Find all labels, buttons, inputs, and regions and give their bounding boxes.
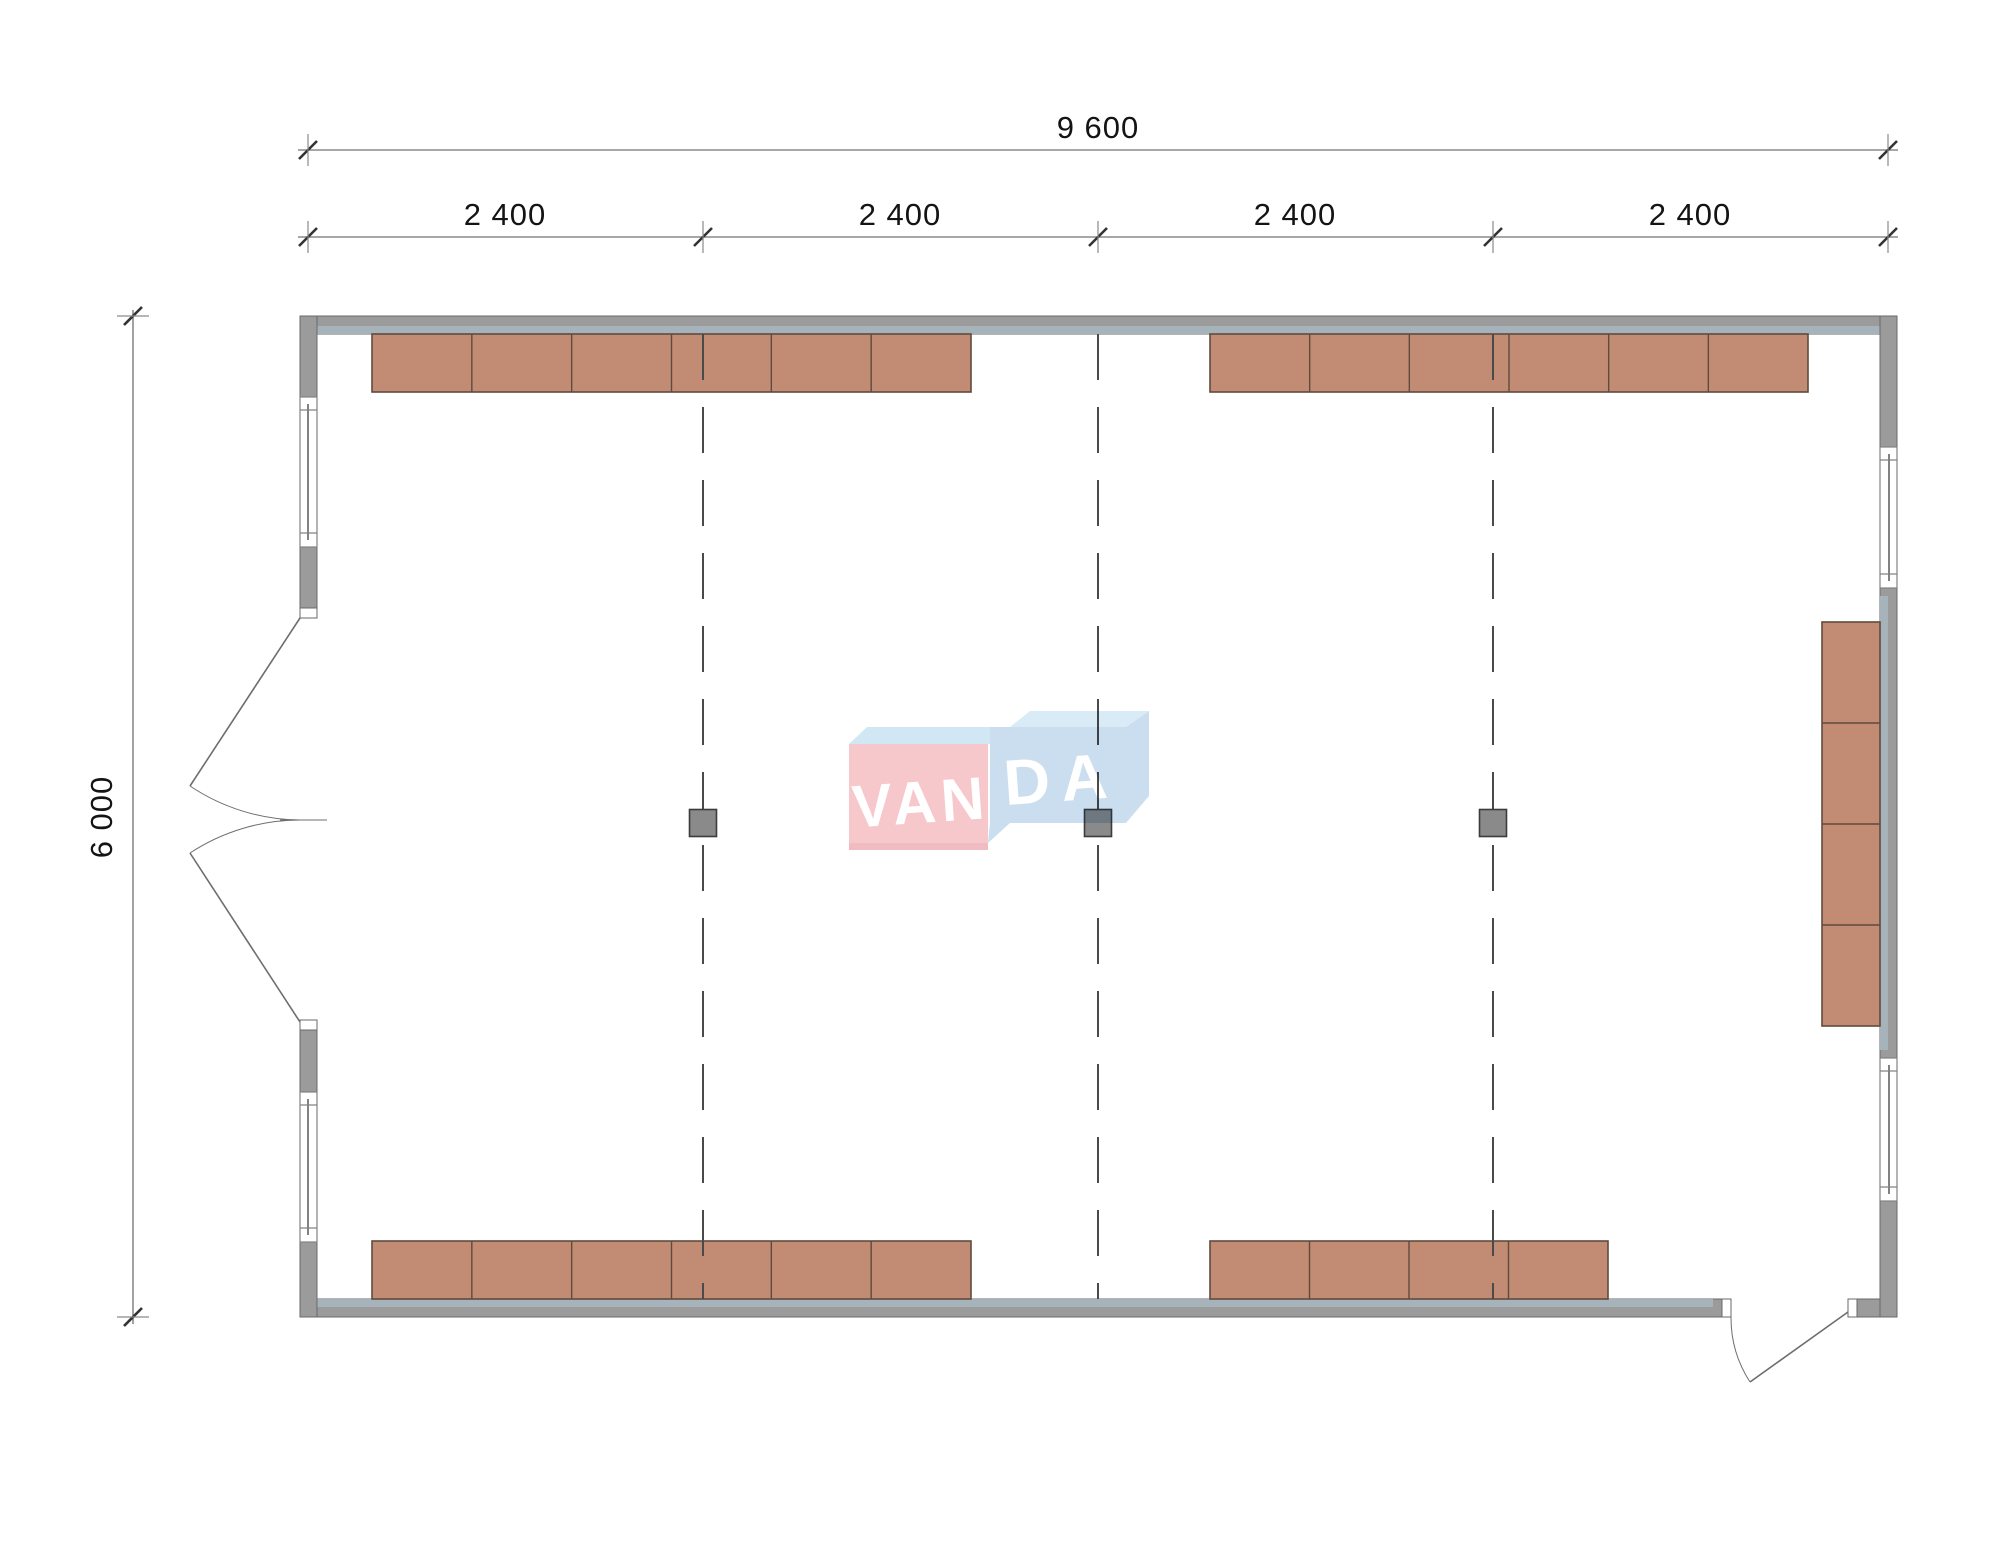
- door-swing-arc: [1731, 1317, 1750, 1382]
- logo-blue-side-face: [1126, 711, 1149, 823]
- logo-blue-bottom-wedge: [988, 823, 1010, 843]
- logo-blue-top-face: [1010, 711, 1149, 727]
- wall-top-inner-face: [317, 326, 1880, 334]
- dimension-label-total-depth: 6 000: [84, 776, 119, 859]
- wall-left-bottom: [300, 1242, 317, 1317]
- wall-right-bottom: [1880, 1201, 1897, 1317]
- logo-text-da: DA: [1001, 739, 1120, 819]
- dimension-label-bay-1: 2 400: [464, 197, 547, 232]
- floor-plan-drawing: 9 600 2 400 2 400 2 400 2 400 6 000: [0, 0, 2000, 1550]
- double-door-left: [190, 618, 327, 1022]
- exit-door-bottom-right: [1731, 1312, 1848, 1382]
- dimension-label-bay-2: 2 400: [859, 197, 942, 232]
- wall-right-top: [1880, 316, 1897, 447]
- dimension-label-total-width: 9 600: [1057, 110, 1140, 145]
- window-right-upper: [1880, 447, 1897, 588]
- dimension-total-width: 9 600: [298, 110, 1898, 150]
- wall-left-top: [300, 316, 317, 397]
- door-swing-arc-upper: [190, 786, 300, 820]
- wall-left-lower-pier: [300, 1030, 317, 1092]
- wall-left-upper-pier: [300, 547, 317, 608]
- door-swing-arc-lower: [190, 820, 300, 853]
- dimension-total-depth: 6 000: [84, 310, 133, 1324]
- wall-right-inner-face: [1880, 596, 1888, 1050]
- logo-pink-shadow: [849, 843, 988, 850]
- column: [1480, 810, 1507, 837]
- window-left-upper: [300, 397, 317, 547]
- wall-bottom-inner-face: [317, 1299, 1713, 1307]
- door-jamb-left: [1722, 1299, 1731, 1317]
- logo-top-band: [849, 727, 1010, 744]
- window-left-lower: [300, 1092, 317, 1242]
- floor-plan-canvas: 9 600 2 400 2 400 2 400 2 400 6 000: [0, 0, 2000, 1550]
- dimension-label-bay-4: 2 400: [1649, 197, 1732, 232]
- door-leaf: [1750, 1312, 1848, 1382]
- logo-text-van: VAN: [850, 764, 992, 840]
- door-jamb-lower: [300, 1020, 317, 1030]
- column: [690, 810, 717, 837]
- door-leaf-lower: [190, 853, 300, 1022]
- door-jamb-right: [1848, 1299, 1857, 1317]
- door-leaf-upper: [190, 618, 300, 786]
- dimension-label-bay-3: 2 400: [1254, 197, 1337, 232]
- door-jamb-upper: [300, 608, 317, 618]
- window-right-lower: [1880, 1058, 1897, 1201]
